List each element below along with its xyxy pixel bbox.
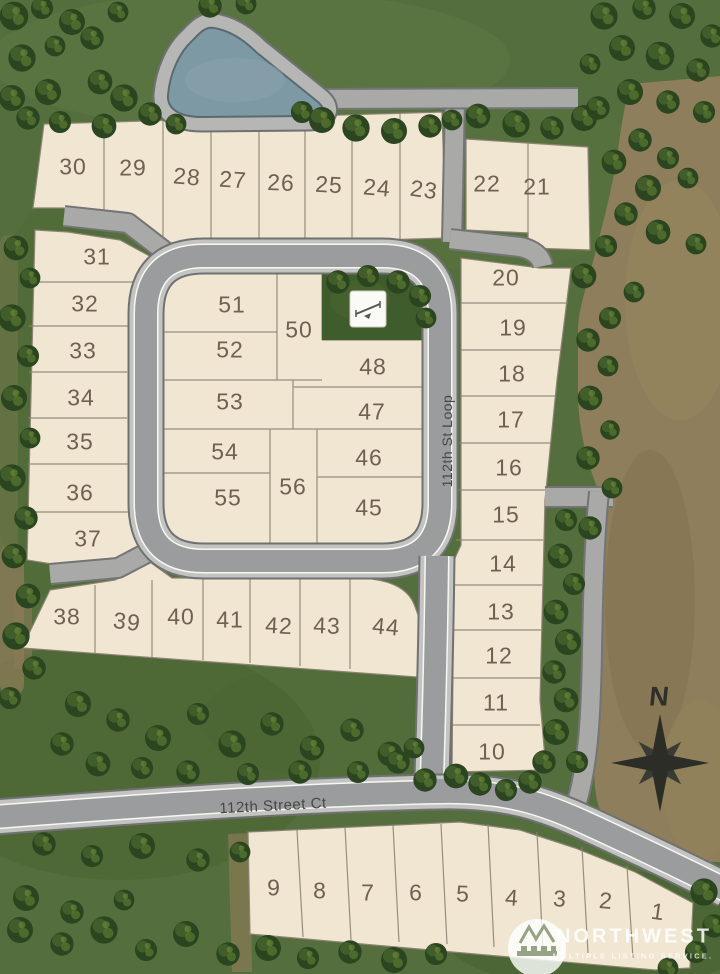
lot-label-31: 31 xyxy=(83,244,111,271)
lot-label-38: 38 xyxy=(53,604,81,631)
lot-label-52: 52 xyxy=(216,337,244,364)
lot-label-34: 34 xyxy=(67,385,95,412)
lot-label-27: 27 xyxy=(218,166,247,195)
lot-label-13: 13 xyxy=(487,599,515,626)
lot-label-9: 9 xyxy=(267,875,281,902)
lot-label-30: 30 xyxy=(59,154,87,181)
lot-label-37: 37 xyxy=(74,526,102,553)
lot-label-14: 14 xyxy=(489,551,517,578)
lot-label-20: 20 xyxy=(492,265,520,292)
lot-label-10: 10 xyxy=(478,739,506,766)
lot-label-3: 3 xyxy=(552,885,568,913)
lot-label-18: 18 xyxy=(498,361,526,388)
site-plan-graphic xyxy=(0,0,720,974)
lot-label-56: 56 xyxy=(279,474,307,501)
watermark-brand: NORTHWEST xyxy=(556,926,712,949)
lot-label-16: 16 xyxy=(495,455,523,482)
lot-label-55: 55 xyxy=(214,485,242,512)
lot-label-21: 21 xyxy=(523,174,551,201)
lot-label-11: 11 xyxy=(483,690,509,717)
playground-icon xyxy=(350,291,386,327)
compass-north-label: N xyxy=(648,682,671,713)
lot-label-25: 25 xyxy=(315,171,344,199)
lot-label-28: 28 xyxy=(172,162,202,191)
lot-label-39: 39 xyxy=(112,607,143,637)
lot-label-54: 54 xyxy=(211,439,239,466)
lot-label-46: 46 xyxy=(355,445,383,472)
watermark-tagline: MULTIPLE LISTING SERVICE. xyxy=(553,952,714,961)
lot-label-47: 47 xyxy=(358,399,386,426)
lot-label-6: 6 xyxy=(409,880,423,907)
lot-label-42: 42 xyxy=(265,612,294,640)
lot-label-51: 51 xyxy=(218,292,246,319)
lot-label-5: 5 xyxy=(456,880,471,907)
lot-label-17: 17 xyxy=(497,407,525,434)
lot-label-45: 45 xyxy=(355,495,383,522)
lot-label-48: 48 xyxy=(359,354,387,381)
lot-label-41: 41 xyxy=(216,607,244,634)
lot-label-36: 36 xyxy=(66,480,94,507)
lot-label-35: 35 xyxy=(66,429,94,456)
lot-label-32: 32 xyxy=(71,291,99,318)
street-label-112th-st-loop: 112th St Loop xyxy=(439,395,455,488)
lot-label-29: 29 xyxy=(119,155,147,182)
lot-label-12: 12 xyxy=(485,643,513,670)
road-pond-east xyxy=(322,98,578,99)
lot-label-23: 23 xyxy=(408,175,439,206)
lot-label-33: 33 xyxy=(69,338,97,365)
lot-label-4: 4 xyxy=(504,884,520,912)
lot-label-50: 50 xyxy=(285,317,313,344)
lot-label-40: 40 xyxy=(167,604,195,631)
lot-label-7: 7 xyxy=(361,880,375,907)
lot-label-2: 2 xyxy=(598,887,614,915)
lot-label-19: 19 xyxy=(499,315,527,342)
lot-label-24: 24 xyxy=(362,173,392,202)
lot-label-15: 15 xyxy=(492,502,520,529)
lot-label-22: 22 xyxy=(473,171,501,198)
lot-label-8: 8 xyxy=(313,878,327,905)
lot-label-43: 43 xyxy=(313,612,342,640)
lot-label-26: 26 xyxy=(267,169,296,197)
lot-label-53: 53 xyxy=(216,389,244,416)
lot-label-44: 44 xyxy=(371,612,401,641)
plat-map: 1 2 3 4 5 6 7 8 9 10 11 12 13 14 15 16 1… xyxy=(0,0,720,974)
